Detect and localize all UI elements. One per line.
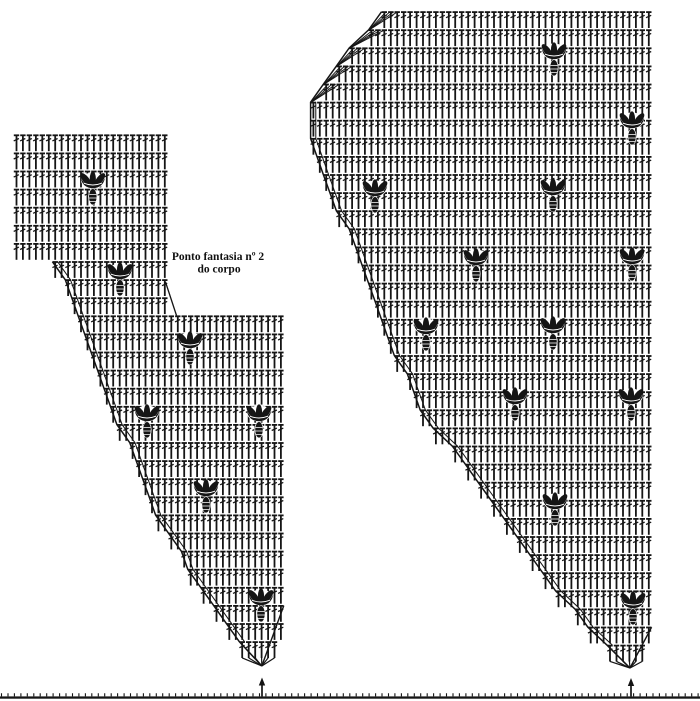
svg-text:Ponto fantasia nº 2: Ponto fantasia nº 2 [172,251,265,263]
svg-text:do corpo: do corpo [197,264,240,276]
